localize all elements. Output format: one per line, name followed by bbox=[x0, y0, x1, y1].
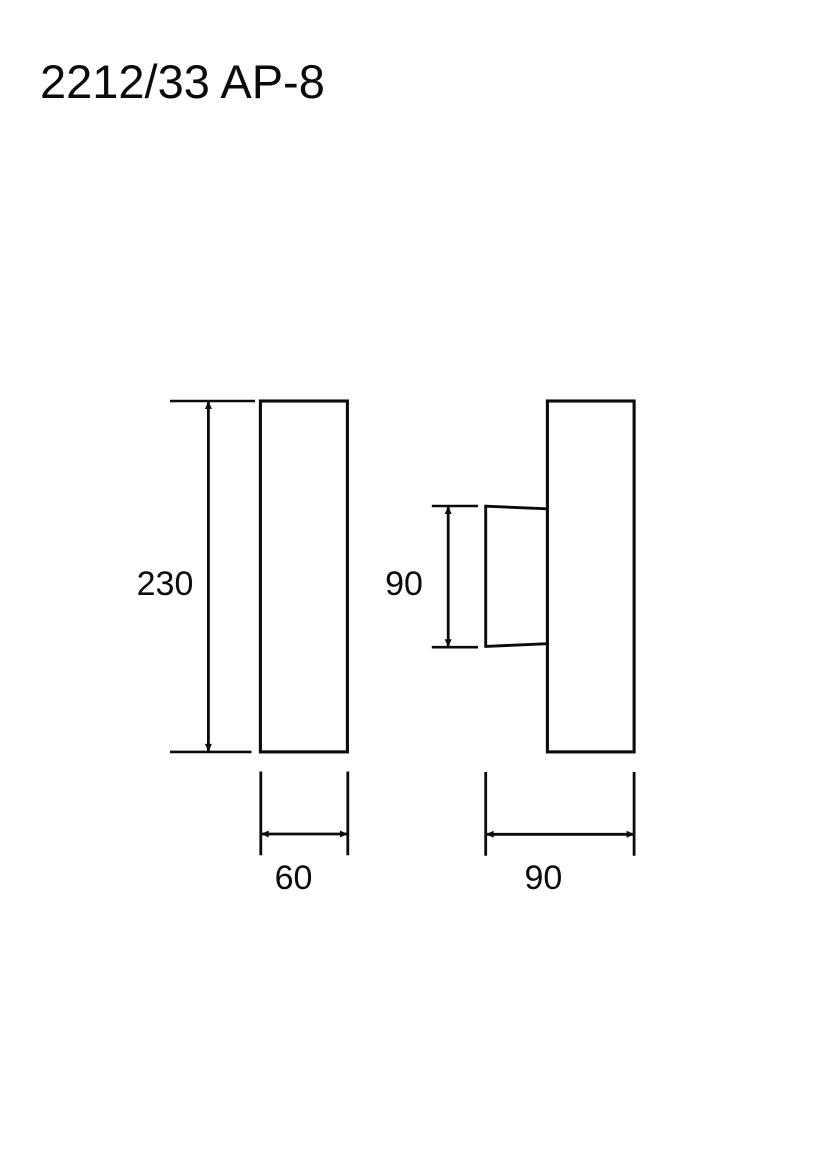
svg-text:90: 90 bbox=[524, 859, 562, 897]
svg-text:90: 90 bbox=[385, 565, 423, 603]
svg-text:2212/33 AP-8: 2212/33 AP-8 bbox=[40, 55, 325, 108]
svg-text:60: 60 bbox=[275, 859, 313, 897]
svg-text:230: 230 bbox=[137, 565, 194, 603]
